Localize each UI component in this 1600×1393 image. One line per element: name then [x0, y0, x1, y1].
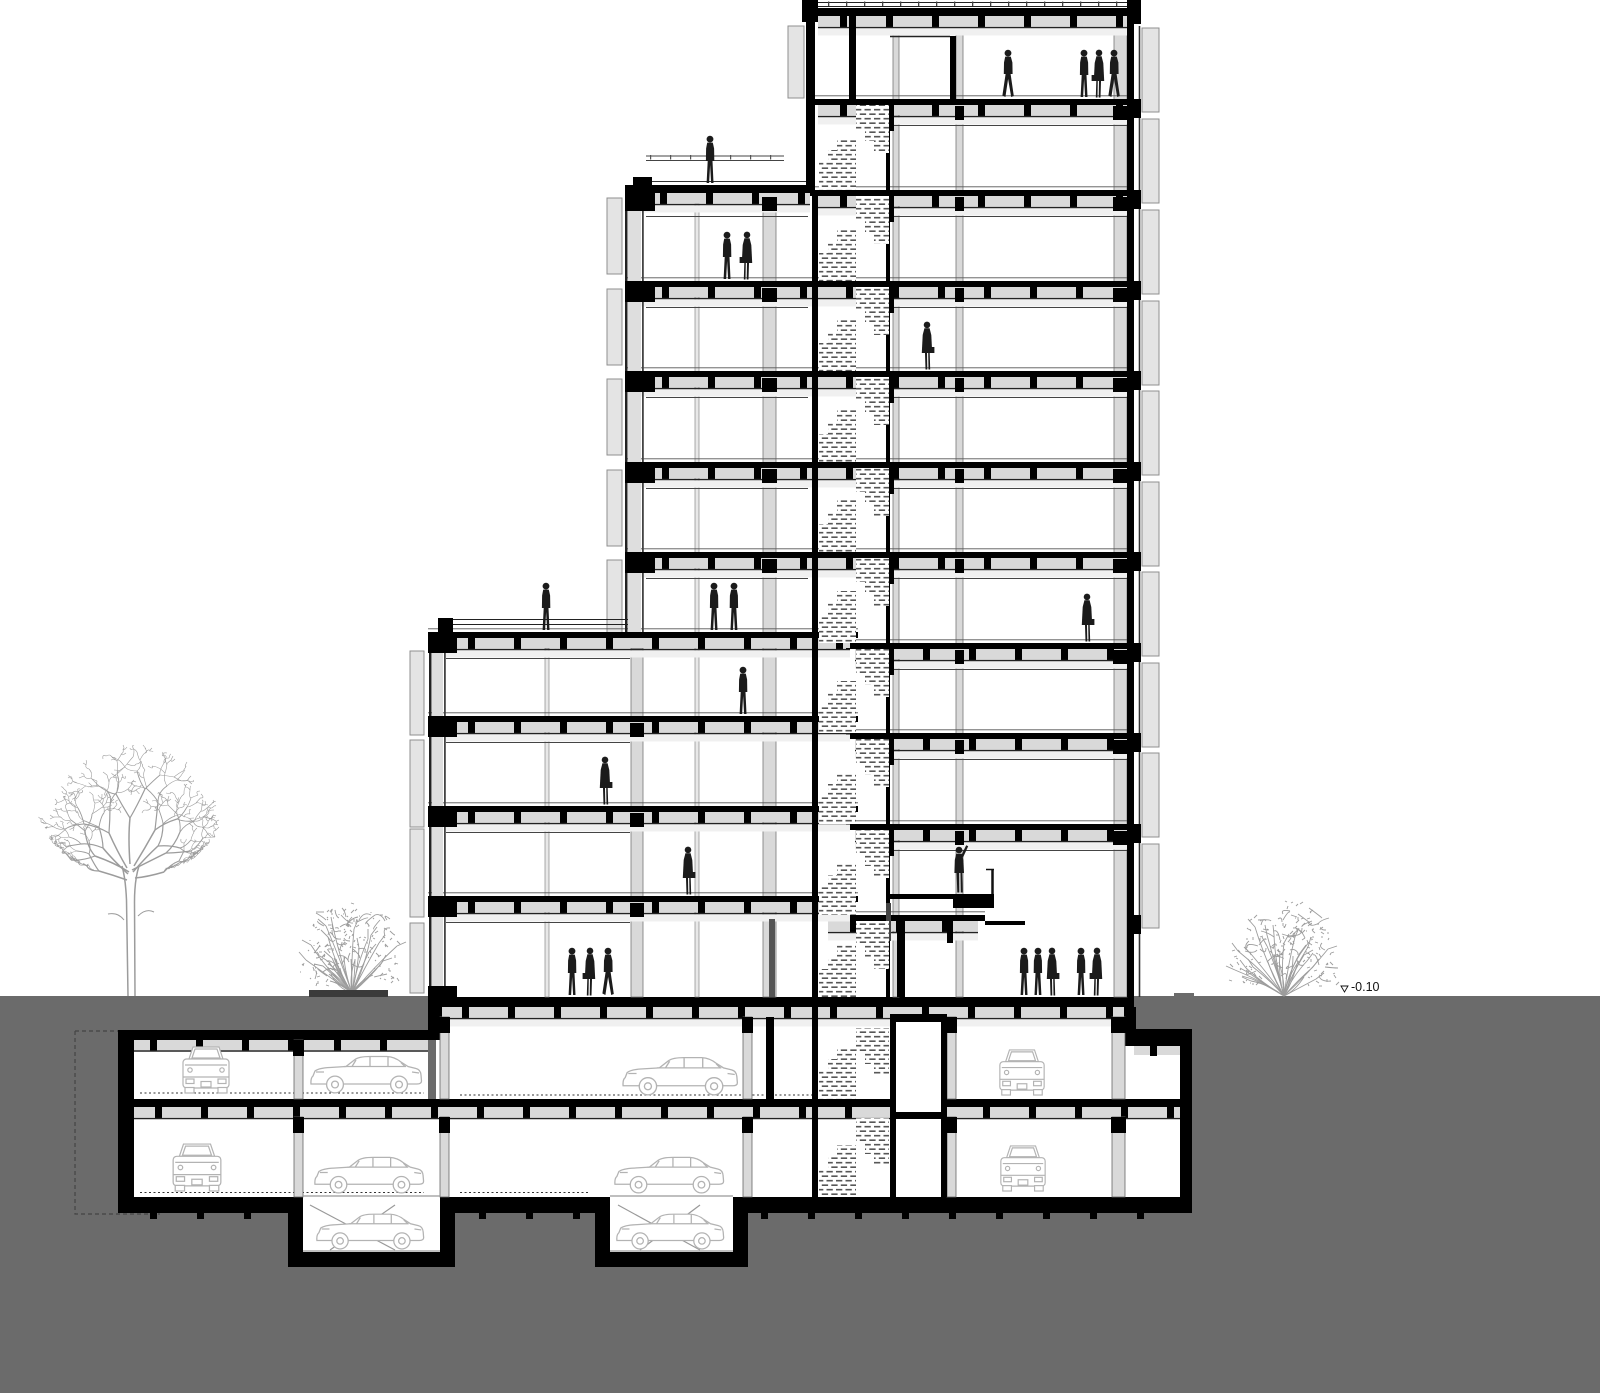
svg-text:-0.10: -0.10 [1351, 980, 1380, 994]
